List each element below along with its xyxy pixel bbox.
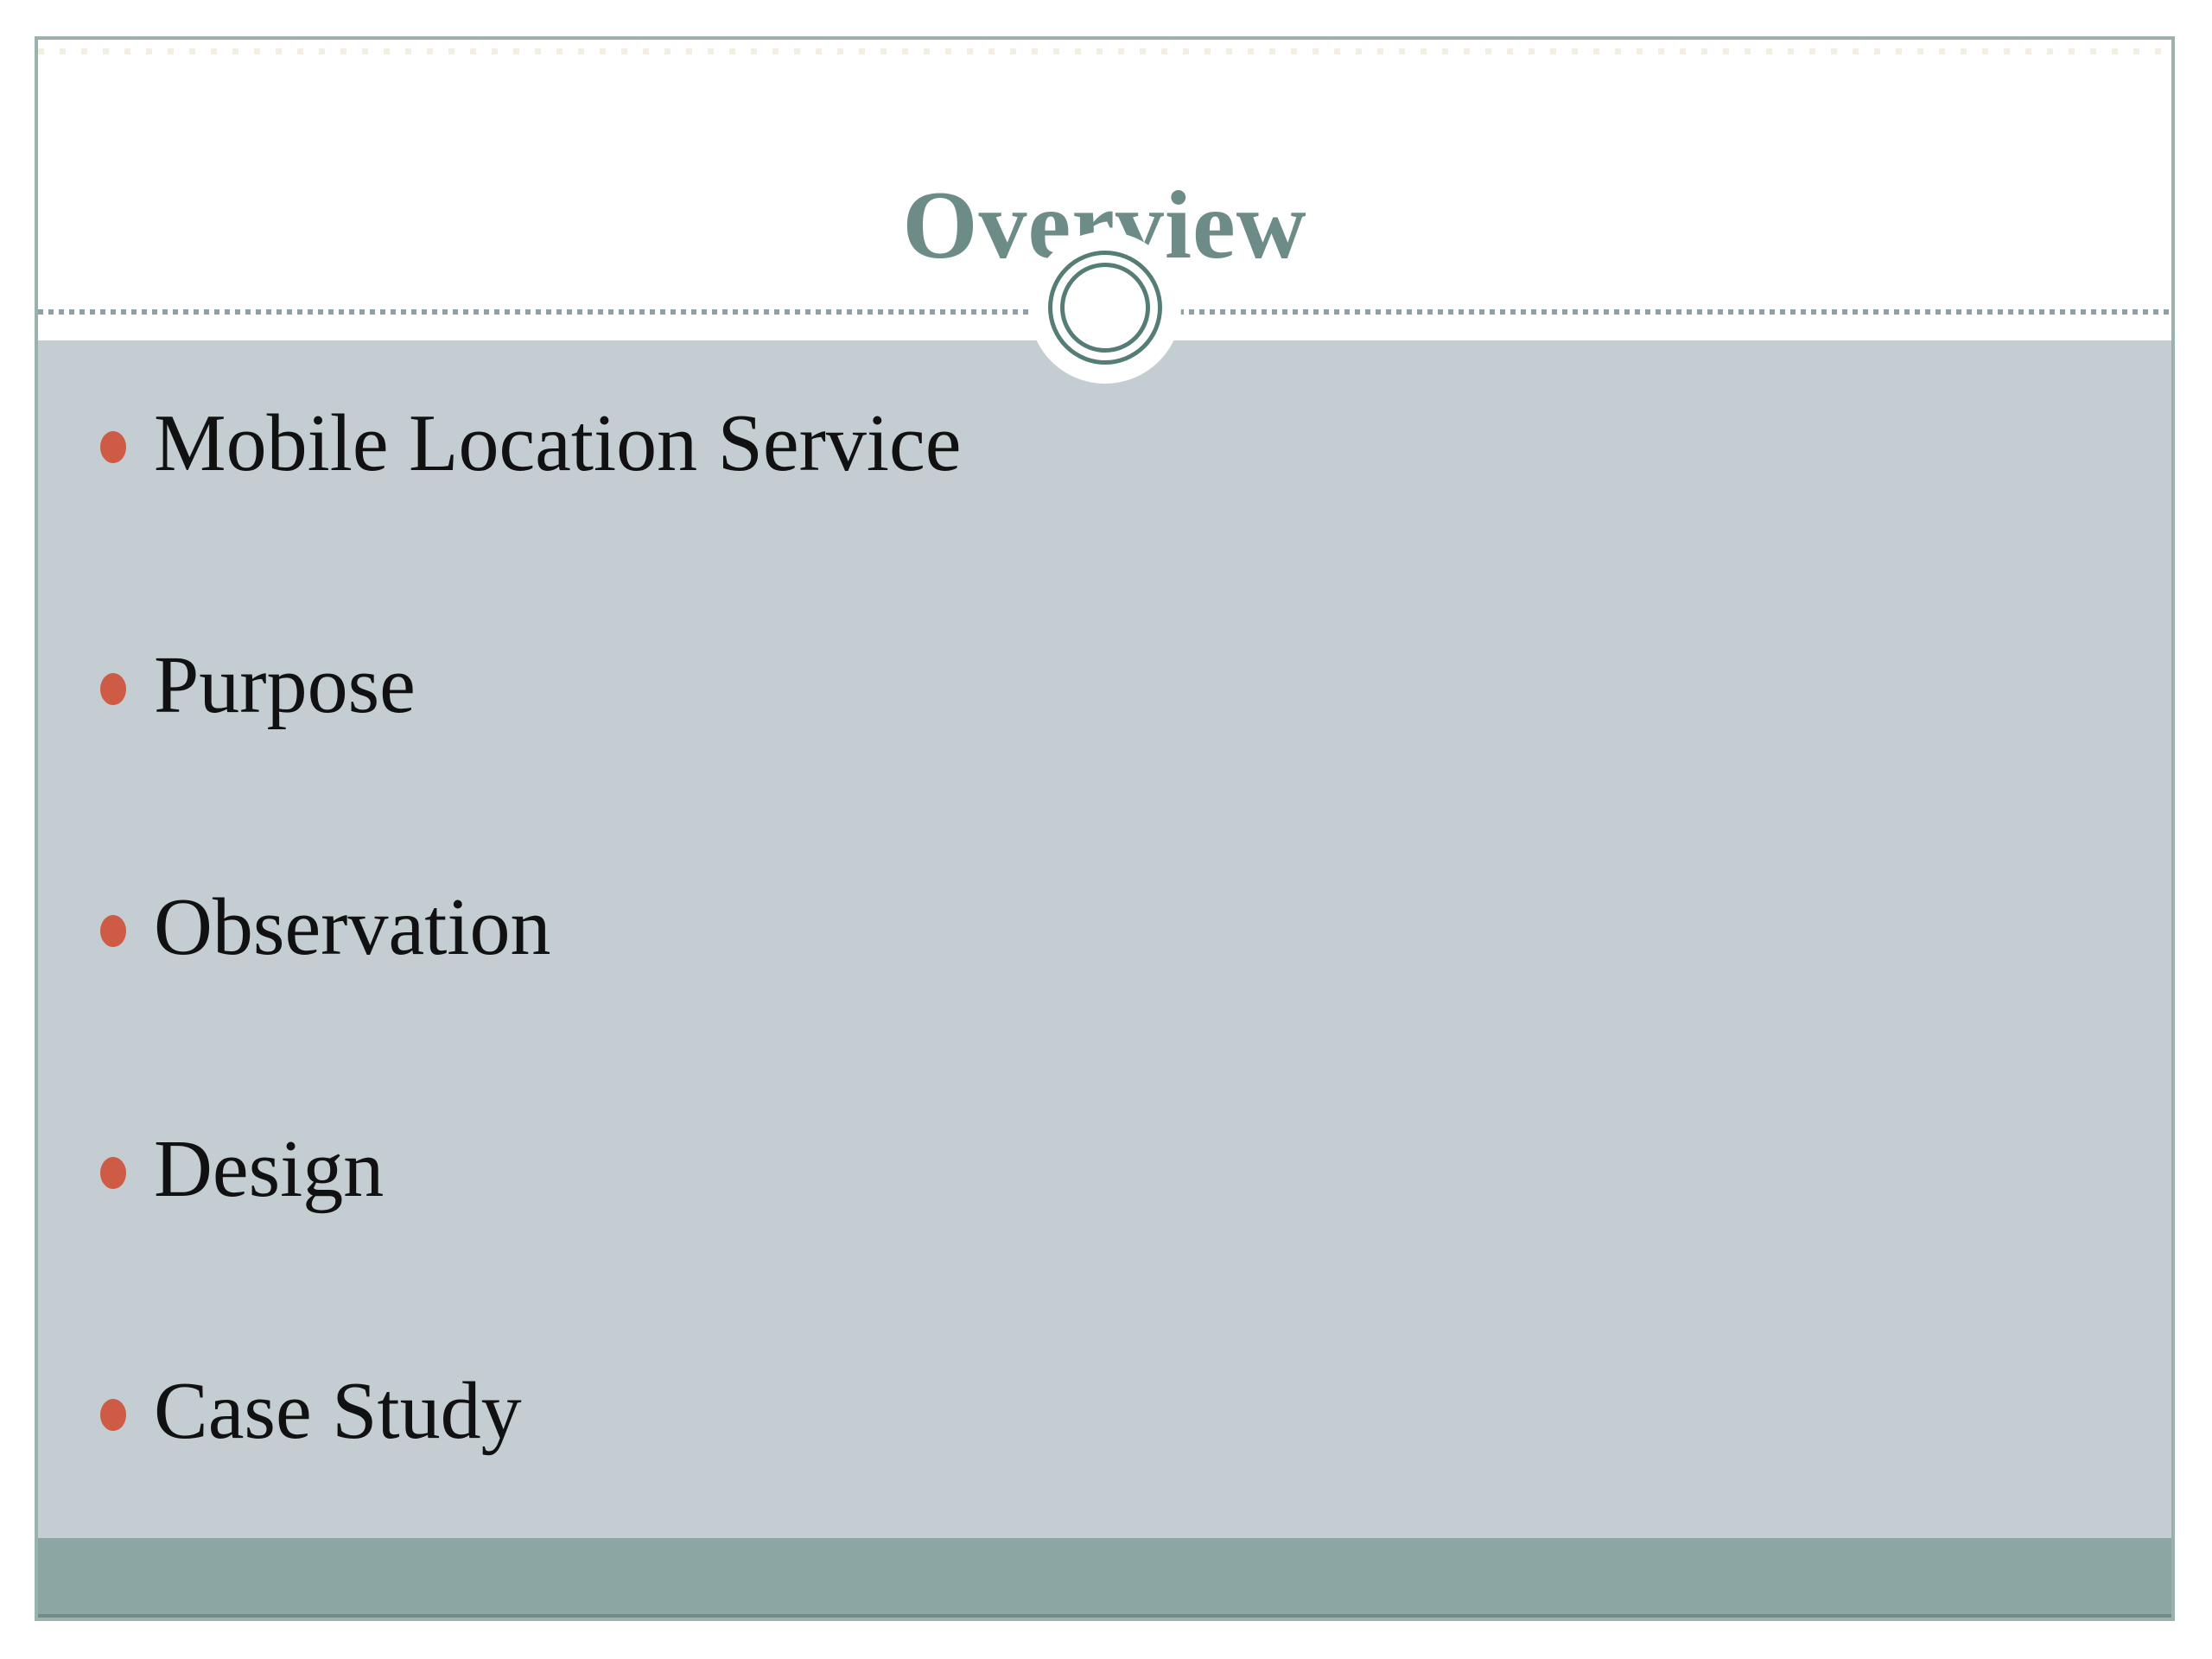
list-item: Purpose	[38, 634, 2171, 738]
bullet-label: Mobile Location Service	[154, 399, 962, 488]
bullet-list: Mobile Location Service Purpose Observat…	[38, 340, 2171, 1548]
list-item: Mobile Location Service	[38, 392, 2171, 496]
bullet-label: Case Study	[154, 1367, 522, 1456]
bullet-label: Design	[154, 1125, 384, 1214]
list-item: Case Study	[38, 1360, 2171, 1464]
bullet-dot-icon	[100, 1157, 126, 1189]
bullet-dot-icon	[100, 673, 126, 705]
bullet-label: Observation	[154, 883, 550, 972]
bullet-dot-icon	[100, 1399, 126, 1431]
bullet-label: Purpose	[154, 641, 416, 730]
content-panel: Mobile Location Service Purpose Observat…	[38, 340, 2171, 1548]
circle-ornament-inner-ring	[1060, 263, 1150, 353]
footer-band	[38, 1538, 2171, 1618]
list-item: Design	[38, 1118, 2171, 1222]
bullet-dot-icon	[100, 431, 126, 463]
theme-dot-row	[38, 48, 2171, 54]
slide: Overview Mobile Location Service Purpose…	[35, 36, 2175, 1621]
bullet-dot-icon	[100, 915, 126, 947]
list-item: Observation	[38, 876, 2171, 980]
